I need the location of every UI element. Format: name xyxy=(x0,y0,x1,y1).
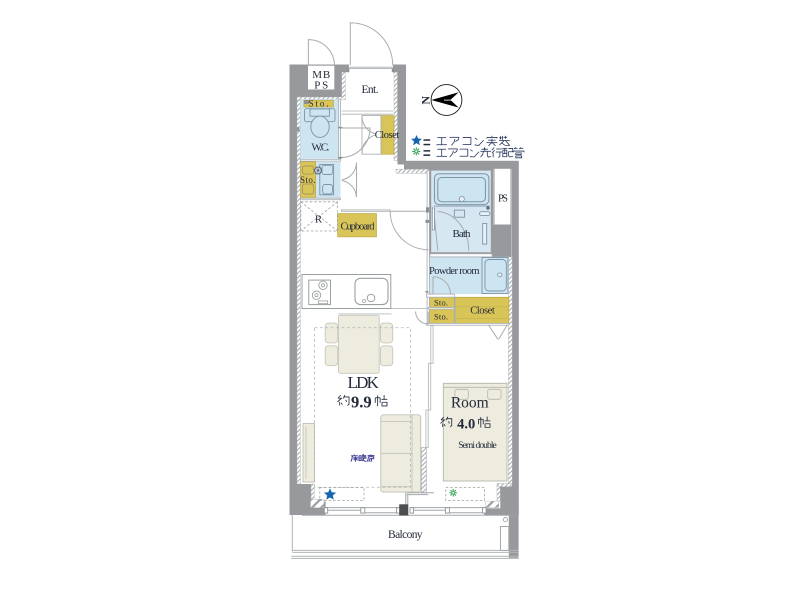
svg-text:PS: PS xyxy=(498,194,508,205)
svg-text:Powder room: Powder room xyxy=(429,266,480,277)
svg-text:Closet: Closet xyxy=(375,130,400,141)
svg-text:R: R xyxy=(315,213,323,225)
svg-text:Sto.: Sto. xyxy=(434,312,448,322)
svg-text:Closet: Closet xyxy=(470,306,495,317)
svg-text:Sto.: Sto. xyxy=(300,175,316,185)
svg-text:9.9: 9.9 xyxy=(351,392,372,411)
svg-text:W.C.: W.C. xyxy=(311,142,329,154)
svg-text:Cupboard: Cupboard xyxy=(341,221,376,232)
svg-text:Semi double: Semi double xyxy=(458,441,497,451)
svg-text:4.0: 4.0 xyxy=(457,417,475,433)
svg-text:Room: Room xyxy=(451,395,489,412)
svg-text:N: N xyxy=(419,96,433,105)
svg-text:LDK: LDK xyxy=(347,373,379,392)
svg-text:PS: PS xyxy=(314,80,328,92)
svg-text:Ent.: Ent. xyxy=(362,84,379,96)
svg-text:Bath: Bath xyxy=(453,228,472,240)
svg-text:Balcony: Balcony xyxy=(388,529,423,541)
svg-text:Sto.: Sto. xyxy=(434,298,448,308)
